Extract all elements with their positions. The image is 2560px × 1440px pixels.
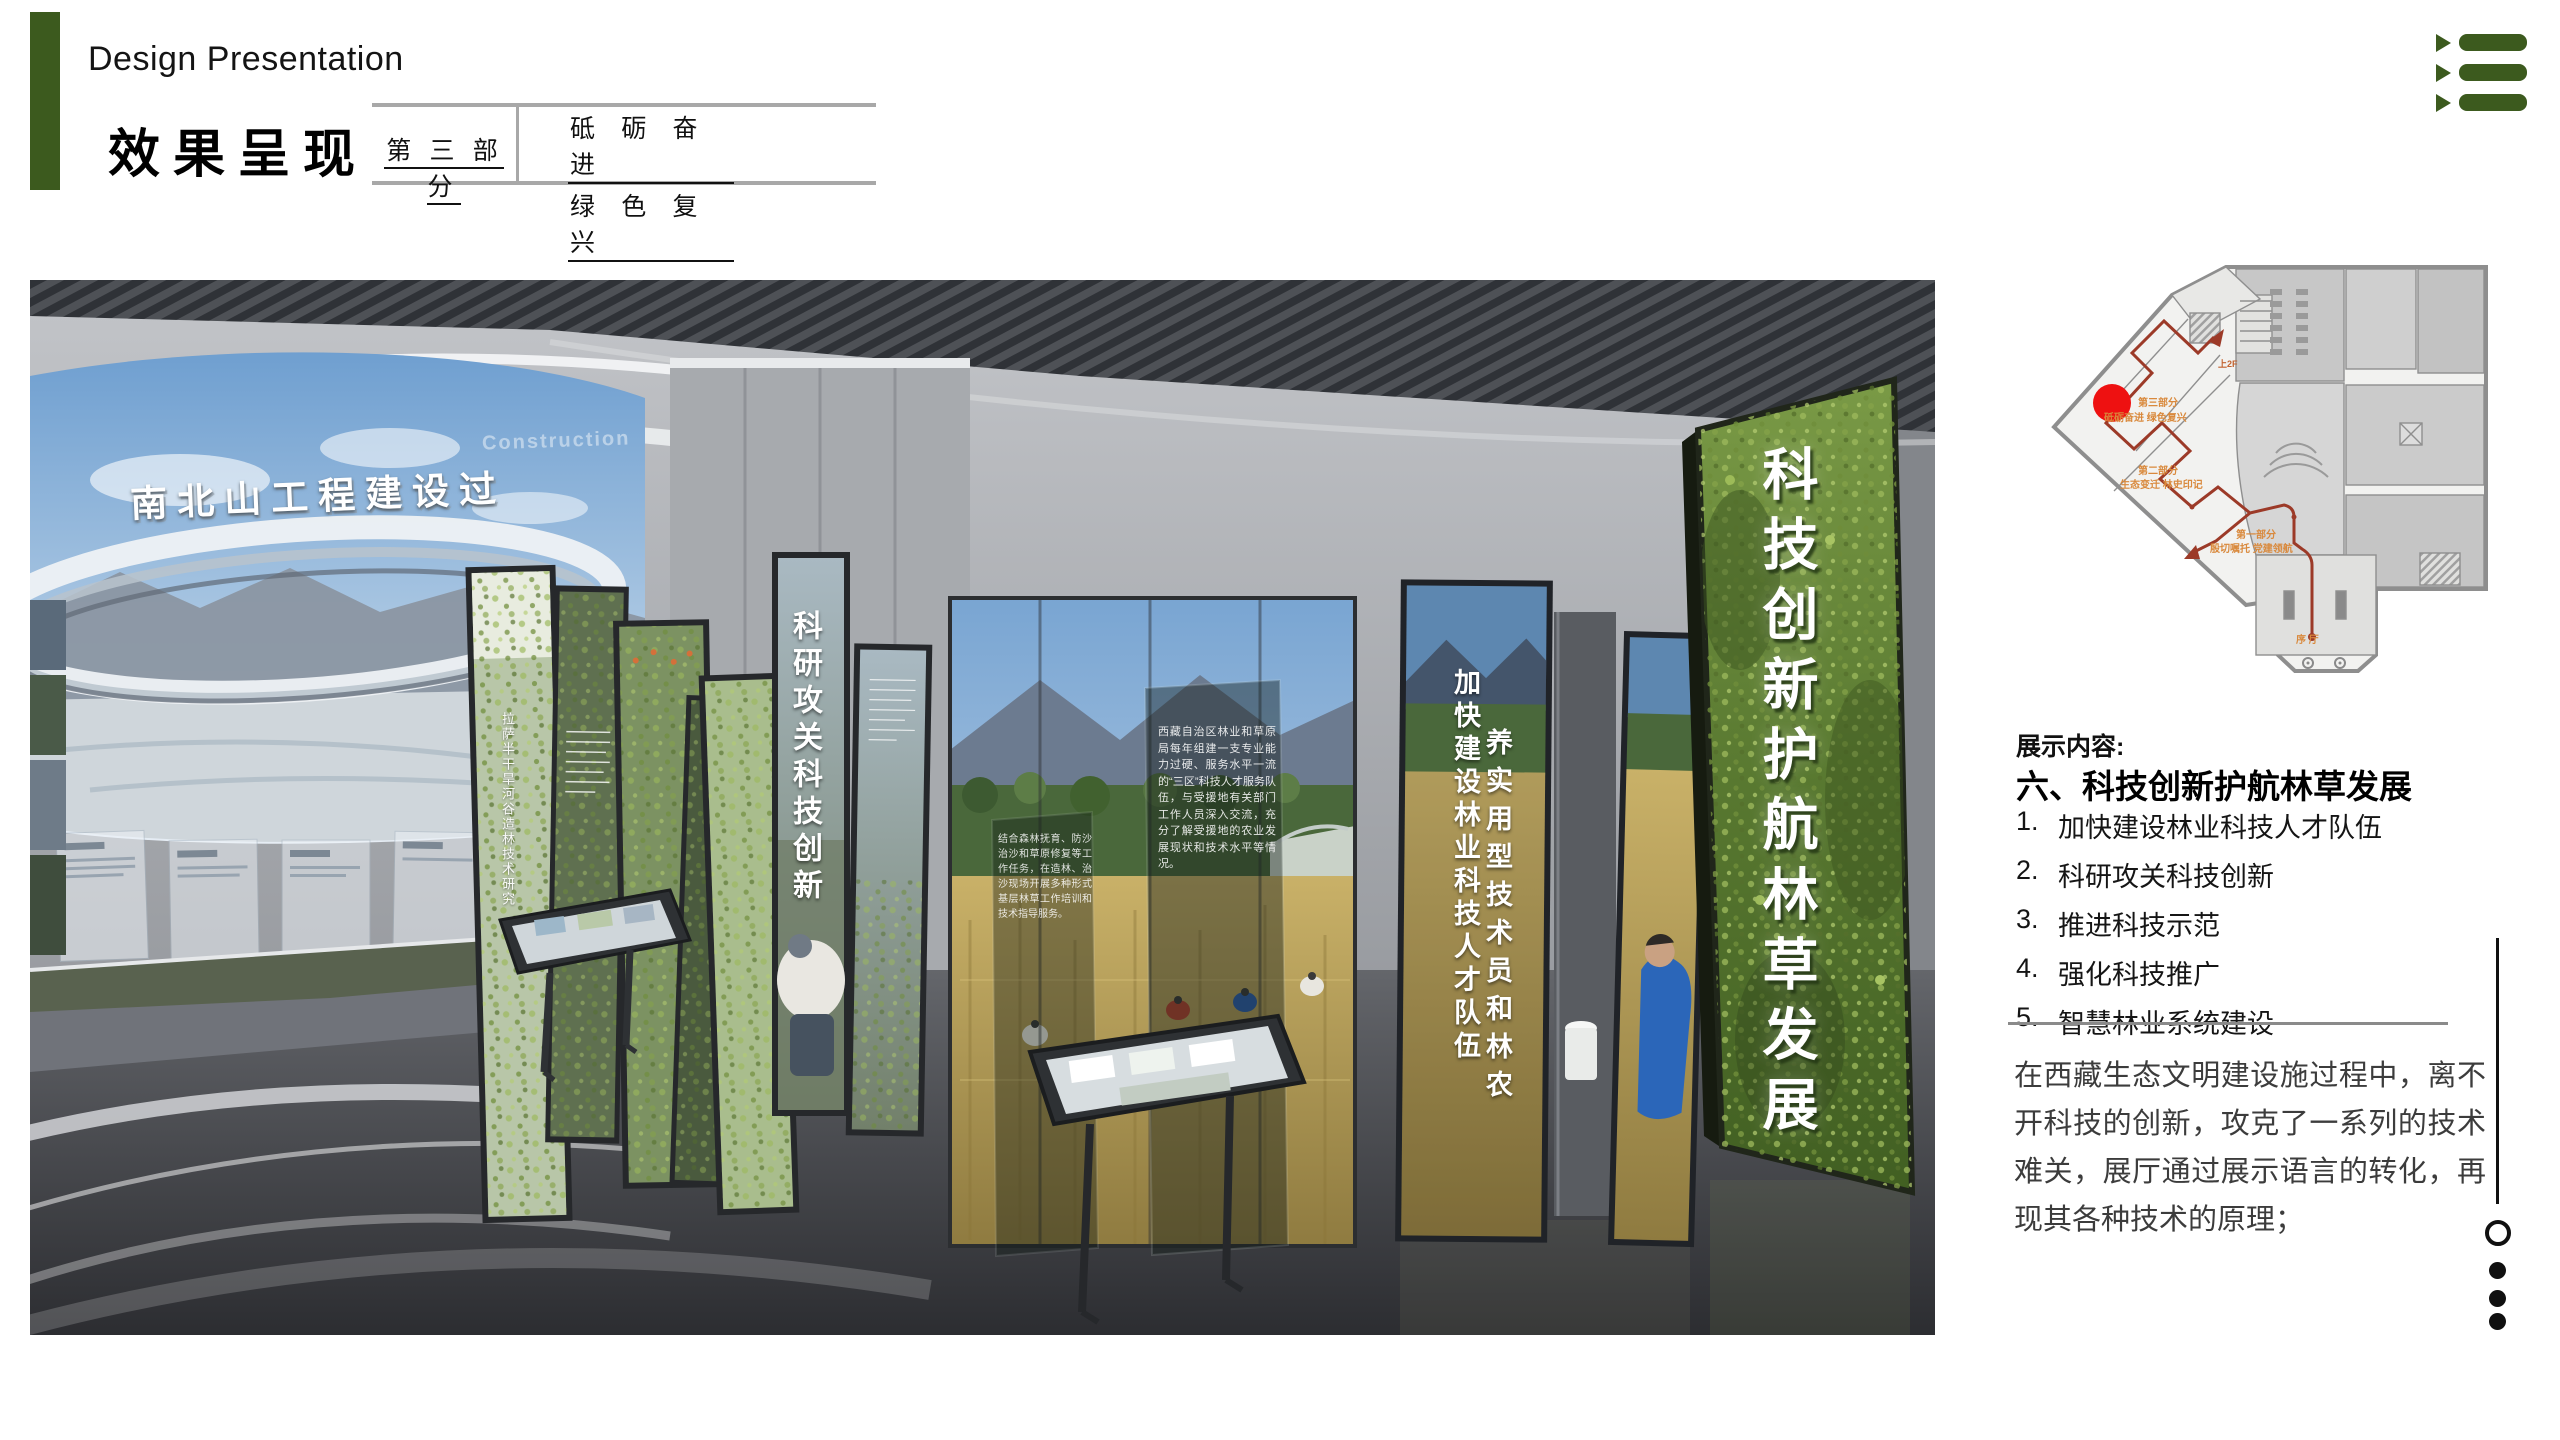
list-item: 2.科研攻关科技创新	[2016, 855, 2382, 894]
glass-paragraph-left: 结合森林抚育、防沙治沙和草原修复等工作任务，在造林、治沙现场开展多种形式基层林草…	[998, 832, 1092, 922]
item-number: 1.	[2016, 806, 2058, 845]
plan-label-up2f: 上2F	[2218, 358, 2238, 369]
research-banner-text: 科研攻关科技创新	[782, 610, 826, 910]
exhibition-render-art	[30, 280, 1935, 1335]
floor-plan: 第三部分 砥砺奋进 绿色复兴 第二部分 生态变迁 林史印记 第一部分 殷切嘱托 …	[2040, 255, 2500, 690]
pager-dot[interactable]	[2489, 1313, 2506, 1330]
triangle-bullet-icon	[2436, 34, 2451, 52]
item-text: 加快建设林业科技人才队伍	[2058, 806, 2382, 845]
part-stamp-box: 第 三 部 分 砥 砺 奋 进 绿 色 复 兴	[372, 103, 876, 185]
entrance-symbol-dot	[2307, 662, 2310, 665]
menu-bar	[2459, 64, 2527, 81]
slide-title-cn: 效果呈现	[108, 112, 368, 187]
item-text: 推进科技示范	[2058, 904, 2220, 943]
content-heading: 六、科技创新护航林草发展	[2016, 760, 2412, 808]
item-text: 科研攻关科技创新	[2058, 855, 2274, 894]
triangle-bullet-icon	[2436, 64, 2451, 82]
item-number: 3.	[2016, 904, 2058, 943]
list-item: 3.推进科技示范	[2016, 904, 2382, 943]
glass-paragraph-right: 西藏自治区林业和草原局每年组建一支专业能力过硬、服务水平一流的“三区”科技人才服…	[1158, 724, 1276, 873]
plan-label-part3-sub: 砥砺奋进 绿色复兴	[2104, 411, 2187, 424]
section-label: 展示内容:	[2016, 727, 2124, 763]
menu-bar	[2459, 94, 2527, 111]
section-divider	[2008, 1022, 2448, 1025]
part-theme-line1: 砥 砺 奋 进	[568, 108, 734, 184]
plan-label-part3: 第三部分	[2138, 396, 2178, 409]
exhibition-render: 南北山工程建设过 Construction 拉萨半干旱河谷造林技术研究 科研攻关…	[30, 280, 1935, 1335]
route-node	[2292, 515, 2297, 520]
list-menu-row	[2436, 94, 2532, 111]
presentation-slide: Design Presentation 效果呈现 第 三 部 分 砥 砺 奋 进…	[0, 0, 2560, 1440]
part-number-label: 第 三 部 分	[384, 138, 504, 205]
pipe	[1565, 1028, 1597, 1080]
panel-note-vertical: 拉萨半干旱河谷造林技术研究	[498, 712, 517, 932]
list-menu-row	[2436, 64, 2532, 81]
left-collage	[30, 600, 66, 955]
slide-title-en: Design Presentation	[88, 40, 404, 79]
menu-bar	[2459, 34, 2527, 51]
triangle-bullet-icon	[2436, 94, 2451, 112]
route-node	[2190, 505, 2195, 510]
plan-label-lobby: 序 厅	[2296, 633, 2319, 646]
plan-label-part1-sub: 殷切嘱托 党建领航	[2210, 542, 2293, 555]
plan-label-part1: 第一部分	[2236, 528, 2276, 541]
pager-dot[interactable]	[2489, 1290, 2506, 1307]
plan-label-part2-sub: 生态变迁 林史印记	[2120, 478, 2203, 491]
list-item: 4.强化科技推广	[2016, 953, 2382, 992]
text-panel	[846, 643, 933, 1136]
pager-dot[interactable]	[2489, 1262, 2506, 1279]
item-text: 强化科技推广	[2058, 953, 2220, 992]
list-menu-icon[interactable]	[2436, 34, 2532, 124]
part-number-cell: 第 三 部 分	[372, 131, 516, 203]
list-item: 1.加快建设林业科技人才队伍	[2016, 806, 2382, 845]
vertical-rule	[2496, 938, 2499, 1204]
main-theme-banner-text: 科技创新护航林草发展	[1746, 445, 1827, 1235]
item-number: 2.	[2016, 855, 2058, 894]
plan-label-part2: 第二部分	[2138, 464, 2178, 477]
entrance-symbol-dot	[2339, 662, 2342, 665]
pager-dot-active[interactable]	[2485, 1220, 2511, 1246]
wall-cove	[670, 358, 970, 368]
description-paragraph: 在西藏生态文明建设施过程中，离不开科技的创新，攻克了一系列的技术难关，展厅通过展…	[2014, 1052, 2486, 1244]
list-menu-row	[2436, 34, 2532, 51]
accent-bar	[30, 12, 60, 190]
part-theme-line2: 绿 色 复 兴	[568, 186, 734, 262]
part-box-divider	[516, 103, 519, 185]
training-banner-text: 养实用型技术员和林农	[1478, 728, 1517, 1148]
gray-pillar	[1554, 612, 1616, 1216]
content-list: 1.加快建设林业科技人才队伍 2.科研攻关科技创新 3.推进科技示范 4.强化科…	[2016, 806, 2382, 1051]
item-number: 4.	[2016, 953, 2058, 992]
part-theme-cell: 砥 砺 奋 进 绿 色 复 兴	[568, 108, 734, 264]
